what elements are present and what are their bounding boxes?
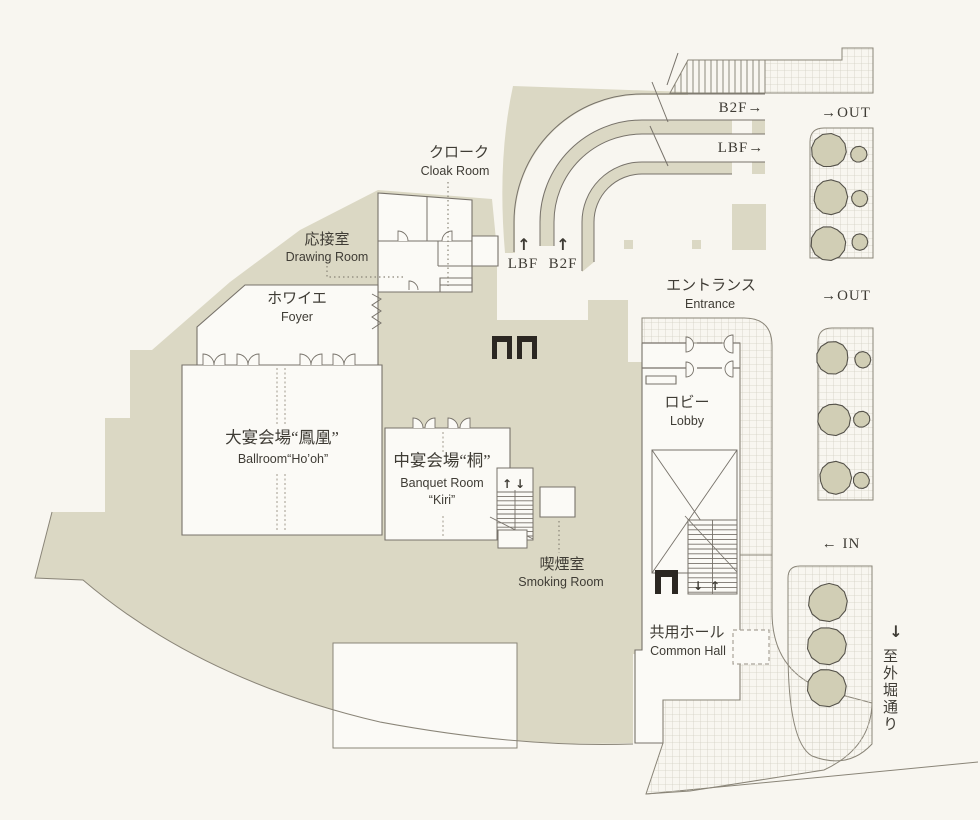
stair-down-arrow: ↓ [515,477,525,491]
tree [811,227,846,261]
sign-b2f-exit: B2F→ [719,100,764,116]
tree [812,134,847,167]
sign-b2f-ramp: B2F [549,256,578,272]
floor-plan-svg: クロークCloak Room応接室Drawing RoomホワイエFoyer大宴… [0,0,980,820]
tree [854,472,870,488]
column [624,240,633,249]
label-lobby-en: Lobby [670,414,705,428]
mid-stairs-landing [498,530,527,548]
stair-down-arrow: ↓ [693,579,703,593]
label-ballroom-jp: 大宴会場“鳳凰” [225,428,339,447]
floorplan-canvas: クロークCloak Room応接室Drawing RoomホワイエFoyer大宴… [0,0,980,820]
tree [820,461,852,494]
cloak-annex [472,236,498,266]
stair-up-arrow: ↑ [502,477,512,491]
service-box-dashed [733,630,769,664]
sign-out-upper: →OUT [821,105,871,121]
label-ballroom-en: Ballroom“Ho’oh” [238,452,328,466]
label-kiri-en2: “Kiri” [429,493,455,507]
label-drawing-en: Drawing Room [286,250,369,264]
tree [852,190,868,206]
tree [855,352,871,368]
street-down-arrow: ↓ [889,622,902,641]
smoking-room [540,487,575,517]
sign-lbf-ramp: LBF [508,256,539,272]
label-common-hall-jp: 共用ホール [649,624,724,641]
label-smoking-jp: 喫煙室 [539,556,584,573]
label-foyer-en: Foyer [281,310,313,324]
tree [814,180,848,215]
ramp-up-arrow-b2f: ↑ [556,235,569,254]
label-entrance-jp: エントランス [666,278,756,294]
label-kiri-en1: Banquet Room [400,476,483,490]
lobby-counter [646,376,676,384]
label-smoking-en: Smoking Room [518,575,603,589]
tree [808,628,847,665]
tree [808,670,847,707]
top-right-stairs-pavement [670,48,873,93]
column-large [732,204,766,250]
tree [852,234,868,251]
ramp-up-arrow-lbf: ↑ [517,235,530,254]
lower-building-block [333,643,517,748]
sign-out-lower: →OUT [821,288,871,304]
ballroom-room [182,365,382,535]
label-drawing-jp: 応接室 [304,231,349,248]
label-common-hall-en: Common Hall [650,644,726,658]
label-foyer-jp: ホワイエ [267,291,327,307]
label-street-vertical: 至外堀通り [881,648,898,733]
tree [818,404,851,435]
tree [817,342,848,374]
tree [854,411,870,427]
sign-in: ← IN [822,536,861,552]
label-kiri-jp: 中宴会場“桐” [393,451,490,470]
cloak-room-block [378,193,472,292]
stair-up-arrow: ↑ [710,579,720,593]
column [692,240,701,249]
planting-beds [788,128,873,761]
pavement-hatch [765,48,873,93]
label-cloak-en: Cloak Room [421,164,490,178]
column [488,388,499,399]
sign-lbf-exit: LBF→ [718,140,765,156]
label-lobby-jp: ロビー [664,394,709,411]
label-entrance-en: Entrance [685,297,735,311]
tree [851,146,867,162]
label-cloak-jp: クローク [429,144,489,161]
exterior-stairs [670,60,765,93]
